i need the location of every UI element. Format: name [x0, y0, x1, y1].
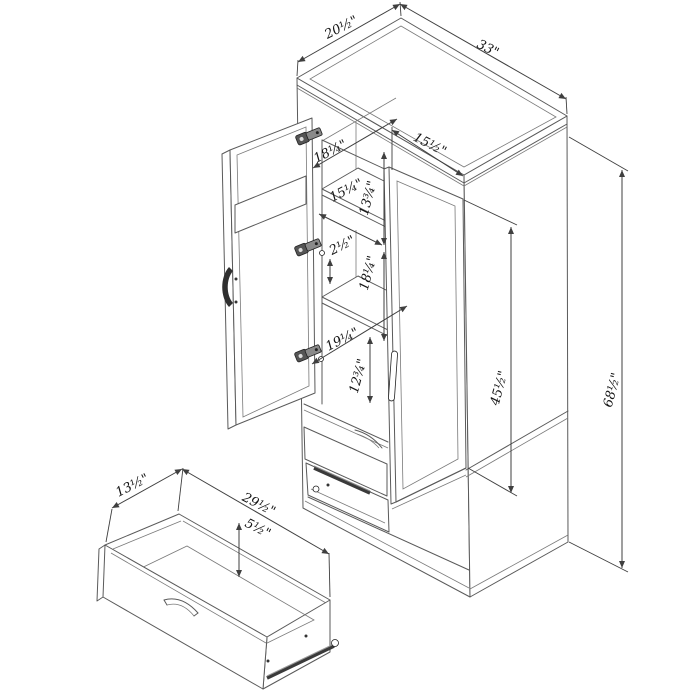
dim-label-top-width: 33" [474, 37, 501, 61]
armoire-dimension-diagram: 20½" 33" 18¼" 15½" 15¼" 13¾" 2½" 18¼" 19… [0, 0, 700, 700]
removed-drawer [97, 514, 339, 689]
dim-label-overall-height: 68½" [601, 371, 625, 409]
cabinet-right-side-panel [464, 116, 568, 597]
right-door [384, 167, 466, 509]
left-door-open [222, 118, 325, 429]
dim-label-drawer-width: 29½" [239, 490, 278, 520]
dim-label-drawer-height: 5½" [242, 516, 273, 542]
technical-drawing: 20½" 33" 18¼" 15½" 15¼" 13¾" 2½" 18¼" 19… [0, 0, 700, 700]
dim-label-top-depth: 20½" [321, 13, 360, 43]
drawer-front-panel [103, 545, 267, 689]
